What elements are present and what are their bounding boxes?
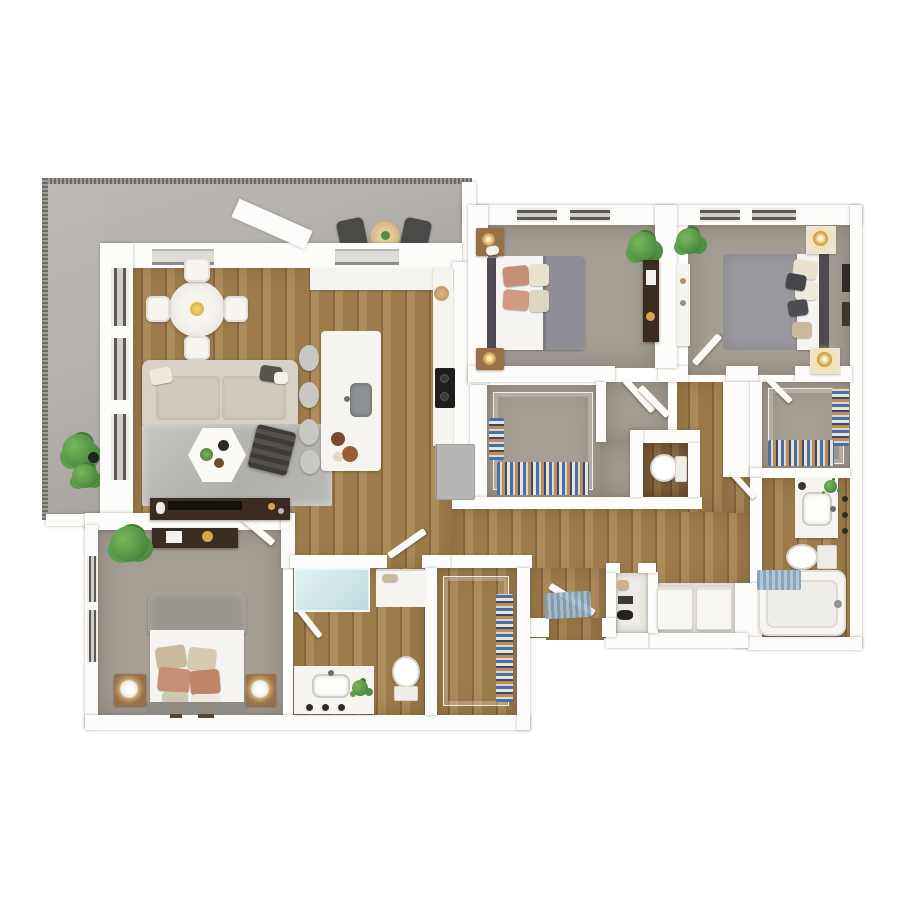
washer bbox=[657, 586, 693, 630]
vanity-light bbox=[306, 704, 313, 711]
tub-faucet bbox=[834, 600, 842, 608]
wall bbox=[748, 637, 862, 650]
balcony-railing-left bbox=[42, 178, 48, 520]
toilet-tank bbox=[394, 686, 418, 701]
console-vase bbox=[156, 502, 165, 514]
pillow bbox=[502, 265, 530, 288]
wall bbox=[85, 715, 530, 730]
table-lamp bbox=[120, 680, 138, 698]
wall bbox=[658, 366, 688, 382]
pillow bbox=[785, 272, 807, 291]
pillow bbox=[157, 666, 191, 693]
wall bbox=[452, 555, 532, 568]
plant bbox=[628, 232, 658, 262]
window bbox=[700, 208, 740, 222]
sink bbox=[312, 674, 350, 698]
pillow bbox=[502, 289, 530, 311]
hanging-clothes bbox=[496, 594, 513, 702]
shower bbox=[294, 568, 370, 612]
wall bbox=[527, 618, 549, 637]
pillow bbox=[189, 669, 221, 696]
island-sink bbox=[350, 383, 372, 417]
dining-chair bbox=[146, 296, 170, 322]
pillow bbox=[529, 290, 549, 312]
faucet bbox=[344, 396, 350, 402]
window bbox=[111, 268, 129, 326]
desk-decor bbox=[680, 278, 686, 284]
entry-threshold bbox=[546, 618, 604, 640]
sconce bbox=[842, 528, 848, 534]
bed1-headboard bbox=[146, 702, 248, 715]
dresser-decor bbox=[646, 312, 655, 321]
pillow bbox=[792, 322, 812, 338]
console-decor bbox=[278, 508, 284, 514]
plant bbox=[352, 680, 368, 696]
window bbox=[87, 556, 98, 602]
plant bbox=[676, 228, 702, 254]
bar-stool bbox=[299, 382, 319, 408]
bed2-duvet bbox=[543, 256, 585, 350]
toilet bbox=[392, 656, 420, 688]
wall bbox=[630, 430, 643, 497]
tv bbox=[168, 501, 242, 510]
faucet bbox=[328, 670, 334, 676]
wall bbox=[850, 205, 862, 648]
doormat bbox=[544, 591, 591, 619]
desk-decor bbox=[680, 300, 686, 306]
kitchen-counter-top bbox=[310, 268, 453, 290]
dryer bbox=[696, 586, 732, 630]
toilet bbox=[786, 544, 818, 570]
dining-chair bbox=[184, 336, 210, 360]
window bbox=[517, 208, 557, 222]
vanity-light bbox=[338, 704, 345, 711]
wall bbox=[750, 468, 850, 478]
dresser bbox=[152, 528, 238, 548]
bed1-duvet bbox=[148, 592, 246, 634]
balcony-railing-top bbox=[42, 178, 472, 184]
burner bbox=[440, 392, 449, 401]
vanity-light bbox=[322, 704, 329, 711]
window bbox=[111, 414, 129, 480]
wall bbox=[290, 555, 387, 568]
pillow bbox=[187, 647, 217, 672]
centerpiece-bowl bbox=[190, 302, 204, 316]
sconce bbox=[842, 512, 848, 518]
balcony-plant bbox=[62, 434, 96, 468]
coffee-table-plant bbox=[200, 448, 213, 461]
bench-items bbox=[198, 714, 214, 718]
pillow bbox=[787, 299, 809, 318]
island-decor bbox=[342, 446, 358, 462]
bar-stool bbox=[300, 450, 320, 474]
folded-clothes bbox=[489, 418, 504, 460]
hanging-clothes bbox=[832, 388, 849, 446]
throw-pillow bbox=[274, 372, 288, 384]
pillow bbox=[529, 264, 549, 286]
plant bbox=[824, 480, 837, 493]
pillow bbox=[155, 644, 188, 670]
fruit-bowl bbox=[434, 286, 449, 301]
table-lamp bbox=[482, 233, 495, 246]
sink bbox=[802, 492, 832, 526]
wall bbox=[726, 366, 758, 382]
window bbox=[570, 208, 610, 222]
table-lamp bbox=[251, 680, 269, 698]
coffee-table-bowl bbox=[218, 440, 229, 451]
refrigerator bbox=[435, 444, 475, 500]
wall bbox=[688, 443, 700, 497]
island-decor bbox=[331, 432, 345, 446]
plant bbox=[110, 526, 148, 562]
wall-art bbox=[842, 302, 850, 326]
bench-items bbox=[170, 714, 182, 718]
wall bbox=[602, 618, 616, 637]
floor-plan bbox=[0, 0, 900, 900]
wall bbox=[596, 382, 606, 442]
hanging-clothes bbox=[768, 440, 834, 466]
wall bbox=[638, 563, 656, 573]
wall bbox=[517, 568, 530, 730]
dining-chair bbox=[224, 296, 248, 322]
island-decor bbox=[333, 452, 343, 462]
shelf-items bbox=[618, 596, 633, 604]
wall bbox=[606, 563, 620, 573]
bar-stool bbox=[299, 419, 319, 445]
toilet bbox=[650, 454, 678, 482]
console-decor bbox=[268, 503, 275, 510]
balcony-plant bbox=[72, 464, 98, 488]
table-lamp bbox=[483, 352, 496, 365]
shelf-items bbox=[617, 610, 633, 620]
bar-stool bbox=[299, 345, 319, 371]
burner bbox=[440, 374, 449, 383]
wall bbox=[723, 382, 750, 477]
dresser-decor bbox=[166, 531, 182, 543]
coffee-table-bowl bbox=[214, 458, 224, 468]
bath-mat bbox=[757, 570, 801, 590]
faucet bbox=[830, 506, 836, 512]
wall bbox=[750, 382, 762, 478]
window bbox=[87, 610, 98, 662]
plant-pot bbox=[88, 452, 99, 463]
dresser-decor bbox=[646, 270, 656, 285]
bed3-headboard bbox=[819, 252, 829, 352]
wall bbox=[422, 555, 455, 568]
dining-chair bbox=[184, 258, 210, 282]
hanging-clothes bbox=[497, 462, 589, 495]
toilet-tank bbox=[817, 545, 837, 569]
window bbox=[752, 208, 796, 222]
table-lamp bbox=[813, 231, 828, 246]
sconce bbox=[842, 496, 848, 502]
wall bbox=[452, 497, 702, 509]
dresser-decor bbox=[202, 531, 213, 542]
window bbox=[111, 338, 129, 400]
shelf-items bbox=[617, 580, 629, 590]
towels bbox=[382, 574, 398, 582]
table-lamp bbox=[817, 352, 832, 367]
bed2-headboard bbox=[487, 258, 496, 348]
vanity-decor bbox=[798, 482, 806, 490]
balcony-slider-door bbox=[335, 249, 399, 265]
balcony-table-plant bbox=[381, 231, 390, 240]
toilet-tank bbox=[675, 456, 687, 482]
wall bbox=[425, 568, 437, 715]
wall-art bbox=[842, 264, 850, 292]
wall bbox=[648, 633, 748, 648]
